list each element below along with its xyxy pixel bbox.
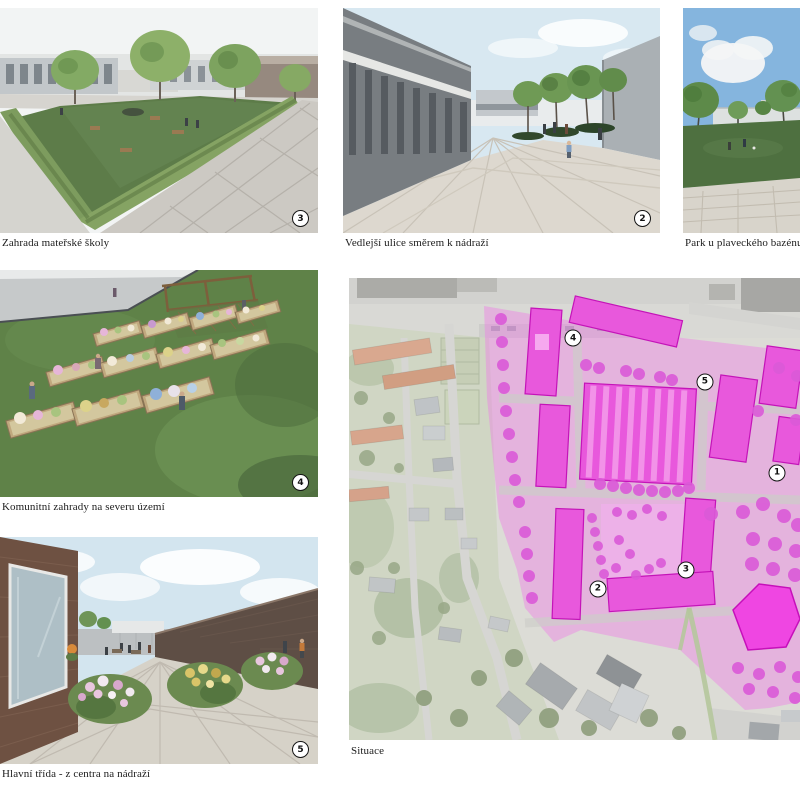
site-plan-markers: 45132 [349, 278, 800, 740]
render-side-street: 2 [343, 8, 660, 233]
site-marker-3: 3 [677, 561, 694, 578]
site-plan: 45132 [349, 278, 800, 740]
pool-park-illustration [683, 8, 800, 233]
site-marker-5: 5 [696, 373, 713, 390]
caption-main-street: Hlavní třída - z centra na nádraží [2, 768, 150, 780]
side-street-illustration [343, 8, 660, 233]
community-gardens-illustration [0, 270, 318, 497]
image-badge-2: 2 [634, 210, 651, 227]
caption-site-plan: Situace [351, 745, 384, 757]
image-badge-5: 5 [292, 741, 309, 758]
kindergarten-garden-illustration [0, 8, 318, 233]
main-street-illustration [0, 537, 318, 764]
image-badge-4: 4 [292, 474, 309, 491]
caption-kindergarten-garden: Zahrada mateřské školy [2, 237, 109, 249]
render-community-gardens: 4 [0, 270, 318, 497]
render-main-street: 5 [0, 537, 318, 764]
site-marker-4: 4 [565, 330, 582, 347]
site-marker-2: 2 [589, 580, 606, 597]
render-kindergarten-garden: 3 [0, 8, 318, 233]
caption-side-street: Vedlejší ulice směrem k nádraží [345, 237, 489, 249]
render-pool-park [683, 8, 800, 233]
site-marker-1: 1 [768, 464, 785, 481]
caption-pool-park: Park u plaveckého bazénu [685, 237, 800, 249]
presentation-board: 3 Zahrada mateřské školy [0, 0, 800, 793]
image-badge-3: 3 [292, 210, 309, 227]
caption-community-gardens: Komunitní zahrady na severu území [2, 501, 165, 513]
